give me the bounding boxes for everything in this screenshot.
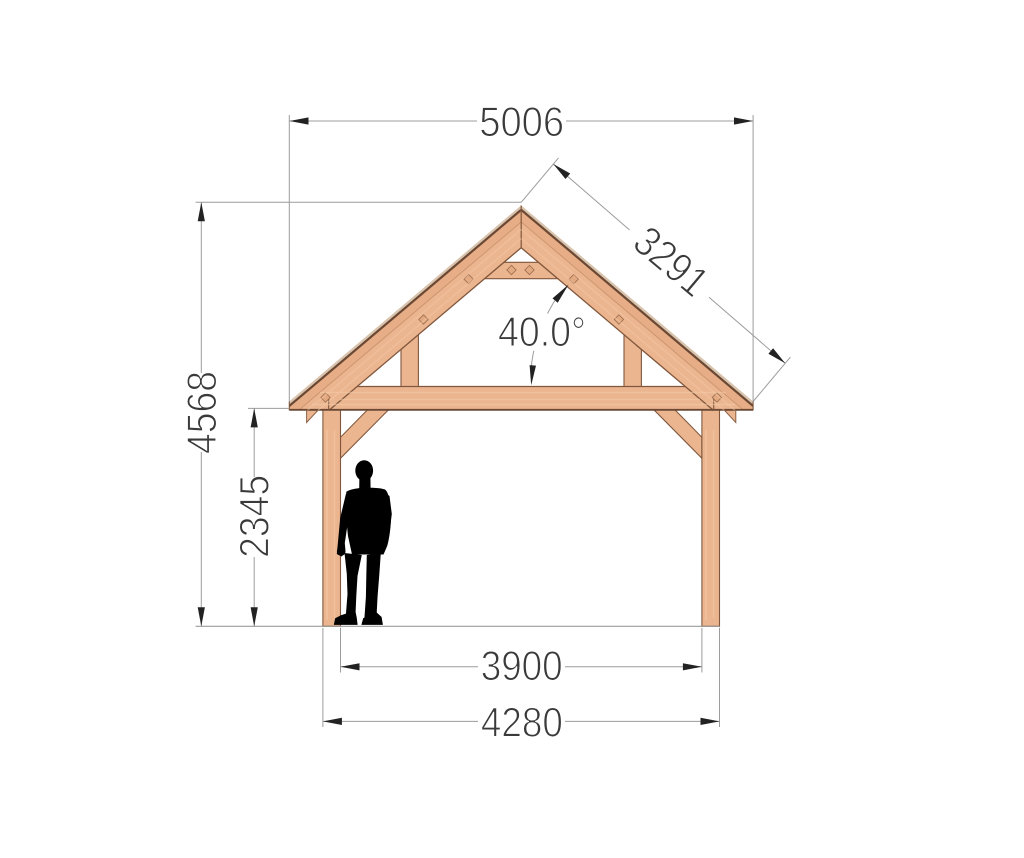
svg-text:2345: 2345 — [231, 475, 278, 558]
svg-text:4280: 4280 — [481, 698, 563, 745]
svg-text:40.0°: 40.0° — [498, 308, 586, 355]
svg-text:5006: 5006 — [479, 98, 564, 145]
svg-text:4568: 4568 — [178, 371, 225, 454]
svg-text:3900: 3900 — [481, 642, 563, 689]
